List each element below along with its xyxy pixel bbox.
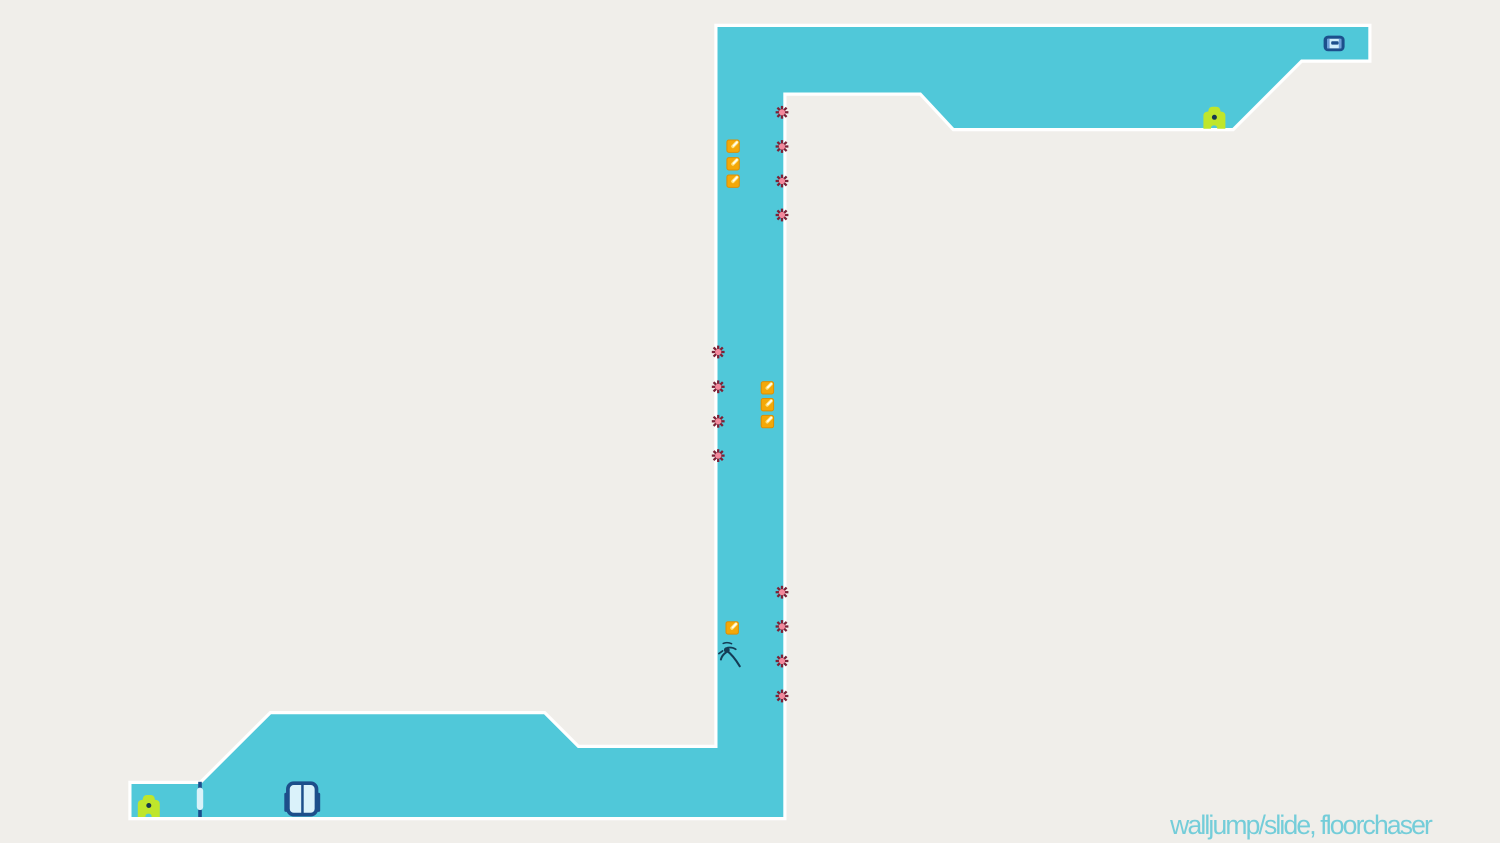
svg-text:walljump/slide, floorchaser: walljump/slide, floorchaser (1169, 810, 1433, 840)
